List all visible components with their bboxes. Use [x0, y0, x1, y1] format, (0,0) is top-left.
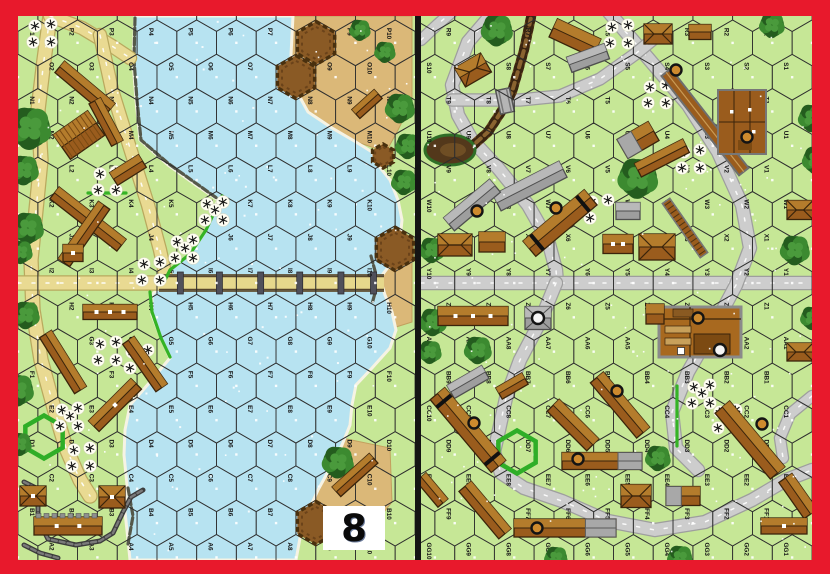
hex-label: D8 — [306, 439, 313, 448]
hex-label: L8 — [306, 165, 313, 173]
hex-label: H10 — [385, 302, 392, 314]
hex-label: F7 — [266, 371, 273, 379]
hex-label: Z1 — [762, 302, 769, 310]
hex-label: A7 — [246, 542, 253, 551]
hex-label: GG5 — [623, 542, 630, 556]
board-fold-divider — [415, 16, 421, 560]
hex-label: V7 — [524, 165, 531, 173]
hex-label: C10 — [365, 474, 372, 486]
hex-label: BB4 — [643, 371, 650, 384]
building-icon — [438, 307, 508, 326]
building-icon — [646, 304, 664, 324]
hex-label: GG8 — [504, 542, 511, 556]
hex-label: M10 — [365, 131, 372, 144]
hex-label: F1 — [28, 371, 35, 379]
hex-label: BB6 — [564, 371, 571, 384]
building-icon — [787, 201, 813, 220]
hex-label: S3 — [703, 62, 710, 70]
hex-label: Z6 — [564, 302, 571, 310]
hex-label: L9 — [345, 165, 352, 173]
hex-label: Y7 — [544, 268, 551, 276]
hex-label: N8 — [306, 96, 313, 105]
hex-label: P4 — [147, 28, 154, 36]
hex-label: S10 — [425, 62, 432, 74]
hex-label: O3 — [87, 62, 94, 71]
hex-label: N4 — [147, 96, 154, 105]
hex-label: I6 — [207, 268, 214, 274]
hex-label: V9 — [445, 165, 452, 173]
hex-label: F5 — [187, 371, 194, 379]
hex-label: C8 — [286, 474, 293, 483]
hex-label: J7 — [266, 234, 273, 242]
hex-label: Y3 — [703, 268, 710, 276]
hex-label: EE2 — [742, 474, 749, 487]
building-icon — [639, 234, 675, 260]
hex-label: D7 — [266, 439, 273, 448]
hex-label: R9 — [445, 28, 452, 37]
hex-label: H7 — [266, 302, 273, 311]
hex-label: M9 — [326, 131, 333, 140]
hex-label: L5 — [187, 165, 194, 173]
hex-label: AA7 — [544, 337, 551, 350]
hex-label: K10 — [365, 199, 372, 211]
hex-label: R2 — [723, 28, 730, 37]
hex-label: E8 — [286, 405, 293, 413]
hex-label: X2 — [723, 234, 730, 242]
hex-label: I8 — [286, 268, 293, 274]
hex-label: A2 — [48, 542, 55, 551]
hex-label: F6 — [226, 371, 233, 379]
hex-label: O7 — [246, 62, 253, 71]
hex-label: DD7 — [524, 440, 531, 453]
hex-label: I2 — [48, 268, 55, 274]
hex-label: L7 — [266, 165, 273, 173]
hex-label: A6 — [207, 542, 214, 551]
hex-label: W2 — [742, 199, 749, 209]
hex-label: M7 — [246, 131, 253, 140]
hex-label: EE8 — [504, 474, 511, 487]
building-emblem-icon — [469, 418, 480, 429]
hex-label: D5 — [187, 439, 194, 448]
hex-label: E9 — [326, 405, 333, 413]
hex-label: F9 — [345, 371, 352, 379]
hex-label: I4 — [127, 268, 134, 274]
panel-left: A1A2A3A4A5A6A7A8A9A10B1B2B3B4B5B6B7B8B9B… — [0, 0, 435, 574]
hex-label: Y9 — [465, 268, 472, 276]
hex-label: BB1 — [762, 371, 769, 384]
hex-label: E3 — [87, 405, 94, 413]
hex-label: DD5 — [604, 440, 611, 453]
hex-label: T9 — [445, 97, 452, 105]
hex-label: A4 — [127, 542, 134, 551]
hex-label: G8 — [286, 337, 293, 346]
hex-label: B7 — [266, 508, 273, 517]
hex-label: L2 — [68, 165, 75, 173]
hex-label: I9 — [326, 268, 333, 274]
building-icon — [514, 519, 616, 537]
hex-label: R7 — [524, 28, 531, 37]
hex-label: H6 — [226, 302, 233, 311]
hex-label: C4 — [127, 474, 134, 483]
hex-label: CC4 — [663, 405, 670, 418]
hex-label: P5 — [187, 28, 194, 36]
board-number: 8 — [341, 507, 367, 550]
board-map-svg: A1A2A3A4A5A6A7A8A9A10B1B2B3B4B5B6B7B8B9B… — [0, 0, 830, 574]
hex-label: N9 — [345, 96, 352, 105]
building-icon — [63, 245, 83, 262]
hex-label: FF6 — [564, 508, 571, 520]
building-emblem-icon — [551, 203, 562, 214]
hex-label: F3 — [107, 371, 114, 379]
building-icon — [616, 203, 640, 220]
hex-label: K3 — [87, 199, 94, 208]
hex-label: BB3 — [683, 371, 690, 384]
hex-label: N6 — [226, 96, 233, 105]
building-emblem-icon — [612, 386, 623, 397]
building-emblem-icon — [532, 312, 544, 324]
wargame-board-screenshot: A1A2A3A4A5A6A7A8A9A10B1B2B3B4B5B6B7B8B9B… — [0, 0, 830, 574]
hex-label: GG6 — [584, 542, 591, 556]
hex-label: P2 — [68, 28, 75, 36]
hex-label: G6 — [207, 337, 214, 346]
hex-label: G10 — [365, 337, 372, 350]
building-emblem-icon — [714, 344, 726, 356]
building-emblem-icon — [472, 206, 483, 217]
hex-label: T6 — [564, 97, 571, 105]
hex-label: T5 — [604, 97, 611, 105]
hex-label: GG10 — [425, 542, 432, 559]
hex-label: B10 — [385, 508, 392, 520]
hex-label: T7 — [524, 97, 531, 105]
hex-label: GG2 — [742, 542, 749, 556]
hex-label: C3 — [87, 474, 94, 483]
hex-label: U8 — [504, 131, 511, 140]
hex-label: V8 — [484, 165, 491, 173]
board-number-box: 8 — [323, 506, 385, 550]
hex-label: X6 — [564, 234, 571, 242]
hex-label: J6 — [226, 234, 233, 242]
hex-label: P10 — [385, 28, 392, 40]
hex-label: O9 — [326, 62, 333, 71]
hex-label: CC1 — [782, 405, 789, 418]
hex-label: S1 — [782, 62, 789, 70]
hex-label: DD3 — [683, 440, 690, 453]
hex-label: H2 — [68, 302, 75, 311]
building-icon — [83, 305, 137, 320]
hex-label: E6 — [207, 405, 214, 413]
building-icon — [20, 486, 46, 506]
hex-label: E5 — [167, 405, 174, 413]
hex-label: J9 — [345, 234, 352, 242]
building-icon — [689, 25, 711, 40]
hex-label: C5 — [167, 474, 174, 483]
hex-label: Y6 — [584, 268, 591, 276]
hex-label: J8 — [306, 234, 313, 242]
hex-label: Y8 — [504, 268, 511, 276]
hex-label: A8 — [286, 542, 293, 551]
hex-label: AA6 — [584, 337, 591, 350]
hex-label: GG1 — [782, 542, 789, 556]
hex-label: FF5 — [604, 508, 611, 520]
hex-label: O10 — [365, 62, 372, 75]
building-icon — [644, 24, 672, 44]
hex-label: C6 — [207, 474, 214, 483]
hex-label: D4 — [147, 439, 154, 448]
hex-label: C7 — [246, 474, 253, 483]
building-icon — [479, 232, 505, 252]
hex-label: Y2 — [742, 268, 749, 276]
hex-label: CC6 — [584, 405, 591, 418]
hex-label: I10 — [365, 268, 372, 277]
hex-label: F10 — [385, 371, 392, 382]
hex-label: D9 — [345, 439, 352, 448]
hex-label: EE4 — [663, 474, 670, 487]
hex-label: EE7 — [544, 474, 551, 487]
hex-label: DD6 — [564, 440, 571, 453]
building-emblem-icon — [757, 419, 768, 430]
hex-label: K9 — [326, 199, 333, 208]
hex-label: S7 — [544, 62, 551, 70]
hex-label: CC8 — [504, 405, 511, 418]
hex-label: M6 — [207, 131, 214, 140]
hex-label: P3 — [107, 28, 114, 36]
hex-label: P6 — [226, 28, 233, 36]
hex-label: Y10 — [425, 268, 432, 280]
hex-label: K7 — [246, 199, 253, 208]
hex-label: BB9 — [445, 371, 452, 384]
hex-label: GG3 — [703, 542, 710, 556]
building-icon — [621, 485, 651, 508]
hex-label: B5 — [187, 508, 194, 517]
hex-label: S2 — [742, 62, 749, 70]
building-icon — [787, 343, 813, 361]
building-icon — [603, 235, 633, 254]
hex-label: FF3 — [683, 508, 690, 520]
hex-label: H5 — [187, 302, 194, 311]
hex-label: G9 — [326, 337, 333, 346]
hex-label: V2 — [723, 165, 730, 173]
hex-label: S8 — [504, 62, 511, 70]
hex-label: K8 — [286, 199, 293, 208]
building-emblem-icon — [671, 65, 682, 76]
hex-label: B4 — [147, 508, 154, 517]
building-icon — [666, 487, 700, 506]
hex-label: U6 — [584, 131, 591, 140]
hex-label: P7 — [266, 28, 273, 36]
hex-label: E7 — [246, 405, 253, 413]
hex-label: V1 — [762, 165, 769, 173]
hex-label: D10 — [385, 439, 392, 451]
hex-label: DD2 — [723, 440, 730, 453]
hex-label: K4 — [127, 199, 134, 208]
hex-label: I7 — [246, 268, 253, 274]
hex-label: E10 — [365, 405, 372, 417]
hex-label: B6 — [226, 508, 233, 517]
hex-label: U1 — [782, 131, 789, 140]
hex-label: F8 — [306, 371, 313, 379]
hex-label: U4 — [663, 131, 670, 140]
hex-label: DD9 — [445, 440, 452, 453]
hex-label: U10 — [425, 131, 432, 143]
hex-label: E4 — [127, 405, 134, 413]
building-icon — [761, 518, 807, 534]
hex-label: AA5 — [623, 337, 630, 350]
panel-right: R1R2R3R4R5R6R7R8R9R10S1S2S3S4S5S6S7S8S9S… — [395, 0, 830, 574]
hex-label: O2 — [48, 62, 55, 71]
hex-label: O6 — [207, 62, 214, 71]
hex-label: N5 — [187, 96, 194, 105]
hex-label: N1 — [28, 96, 35, 105]
hex-label: O5 — [167, 62, 174, 71]
hex-label: D6 — [226, 439, 233, 448]
hex-label: H8 — [306, 302, 313, 311]
hex-label: U9 — [465, 131, 472, 140]
hex-label: N7 — [266, 96, 273, 105]
hex-label: FF4 — [643, 508, 650, 520]
hex-label: D3 — [107, 439, 114, 448]
hex-label: W10 — [425, 199, 432, 213]
hex-label: K5 — [167, 199, 174, 208]
hex-label: Z5 — [604, 302, 611, 310]
hex-label: S5 — [623, 62, 630, 70]
hex-label: FF2 — [723, 508, 730, 520]
hex-label: AA8 — [504, 337, 511, 350]
hex-label: H9 — [345, 302, 352, 311]
building-emblem-icon — [573, 454, 584, 465]
hex-label: W3 — [703, 199, 710, 209]
hex-label: AA2 — [742, 337, 749, 350]
hex-label: T8 — [484, 97, 491, 105]
hex-label: E2 — [48, 405, 55, 413]
hex-label: M4 — [127, 131, 134, 140]
hex-label: B1 — [28, 508, 35, 517]
hex-label: EE6 — [584, 474, 591, 487]
hex-label: B3 — [107, 508, 114, 517]
hex-label: I3 — [87, 268, 94, 274]
hex-label: FF7 — [524, 508, 531, 520]
hex-label: V5 — [604, 165, 611, 173]
hex-label: M8 — [286, 131, 293, 140]
hex-label: Y1 — [782, 268, 789, 276]
hex-label: N2 — [68, 96, 75, 105]
hex-label: O4 — [127, 62, 134, 71]
hex-label: Y5 — [623, 268, 630, 276]
building-icon — [718, 90, 766, 154]
building-emblem-icon — [693, 313, 704, 324]
hex-label: GG9 — [465, 542, 472, 556]
building-icon — [34, 514, 102, 536]
hex-label: U7 — [544, 131, 551, 140]
building-icon — [438, 234, 472, 256]
hex-label: G7 — [246, 337, 253, 346]
hex-label: BB2 — [723, 371, 730, 384]
building-emblem-icon — [742, 132, 753, 143]
hex-label: EE3 — [703, 474, 710, 487]
hex-label: FF9 — [445, 508, 452, 520]
building-emblem-icon — [532, 523, 543, 534]
hex-label: X1 — [762, 234, 769, 242]
hex-label: Y4 — [663, 268, 670, 276]
hex-label: L4 — [147, 165, 154, 173]
building-icon — [99, 486, 125, 508]
hex-label: L6 — [226, 165, 233, 173]
hex-label: C2 — [48, 474, 55, 483]
hex-label: G5 — [167, 337, 174, 346]
hex-label: J4 — [147, 234, 154, 242]
